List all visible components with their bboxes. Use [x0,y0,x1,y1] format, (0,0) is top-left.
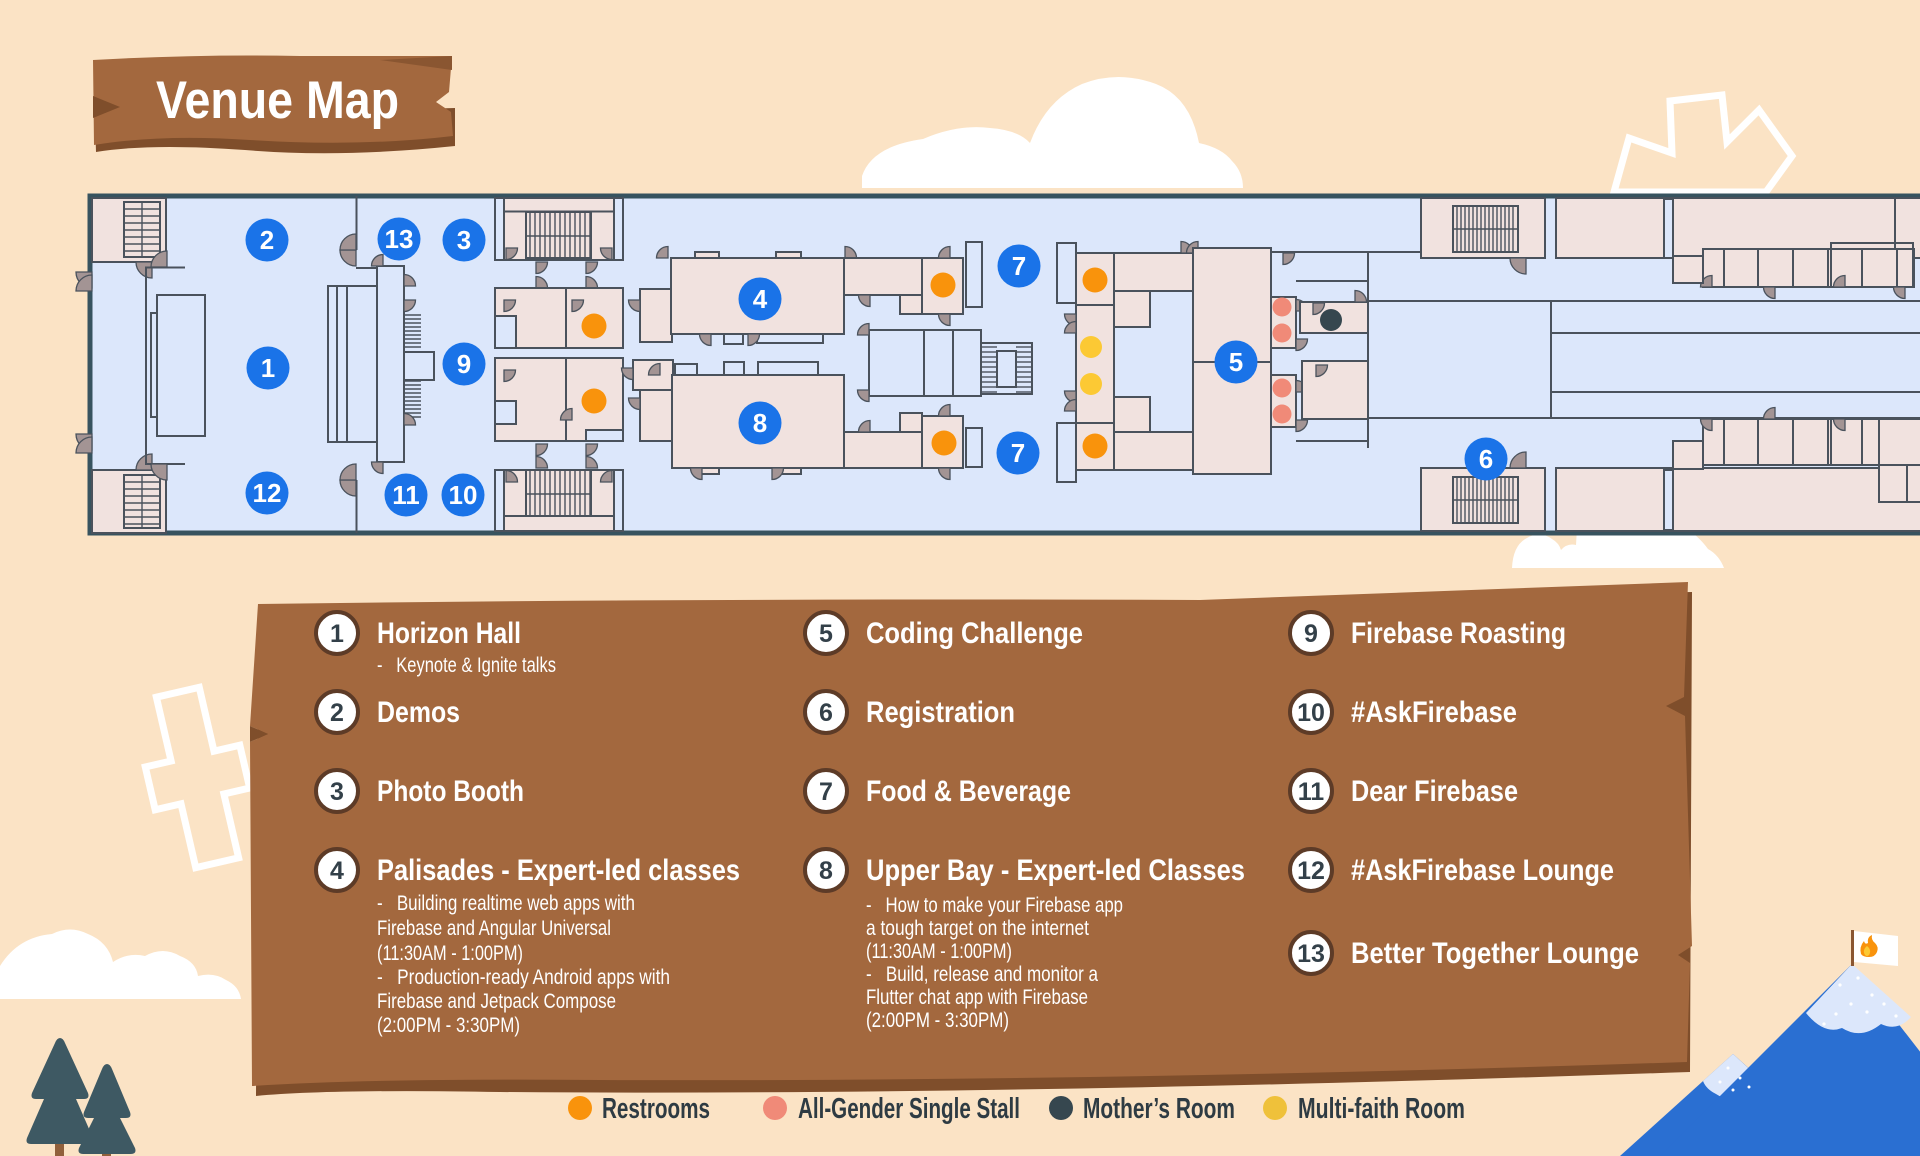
svg-text:(11:30AM - 1:00PM): (11:30AM - 1:00PM) [377,941,523,965]
svg-text:(2:00PM - 3:30PM): (2:00PM - 3:30PM) [866,1008,1009,1032]
svg-text:(11:30AM - 1:00PM): (11:30AM - 1:00PM) [866,939,1012,963]
svg-text:All-Gender Single Stall: All-Gender Single Stall [798,1093,1020,1125]
svg-text:9: 9 [1304,620,1318,648]
svg-text:- How to make your Firebase: - How to make your Firebase app [866,893,1123,917]
svg-text:8: 8 [753,408,767,438]
svg-text:7: 7 [819,778,833,806]
svg-text:11: 11 [1298,778,1325,806]
svg-text:Mother’s Room: Mother’s Room [1083,1093,1235,1125]
svg-text:12: 12 [1297,857,1325,885]
svg-text:- Production-ready Android a: - Production-ready Android apps with [377,965,670,989]
svg-text:3: 3 [457,225,471,255]
svg-text:Flutter chat app with Firebase: Flutter chat app with Firebase [866,985,1088,1009]
svg-text:3: 3 [330,778,344,806]
svg-text:Horizon Hall: Horizon Hall [377,617,521,650]
svg-text:Registration: Registration [866,696,1015,729]
svg-text:Coding Challenge: Coding Challenge [866,617,1083,650]
svg-text:Venue Map: Venue Map [156,71,399,130]
svg-text:- Keynote & Ignite talks: - Keynote & Ignite talks [377,653,556,677]
svg-text:8: 8 [819,857,833,885]
svg-text:4: 4 [330,857,344,885]
svg-text:5: 5 [1229,347,1243,377]
svg-text:10: 10 [1297,699,1325,727]
svg-text:- Build, release and monitor: - Build, release and monitor a [866,962,1098,986]
svg-text:7: 7 [1012,251,1026,281]
svg-text:6: 6 [819,699,833,727]
svg-text:Palisades - Expert-led classes: Palisades - Expert-led classes [377,854,740,887]
svg-text:6: 6 [1479,444,1493,474]
svg-text:4: 4 [753,284,768,314]
svg-text:12: 12 [253,478,282,508]
svg-text:Firebase and Angular Universal: Firebase and Angular Universal [377,916,611,940]
svg-text:11: 11 [392,480,420,510]
svg-text:Photo Booth: Photo Booth [377,775,524,808]
svg-text:2: 2 [330,699,344,727]
svg-text:- Building realtime web apps: - Building realtime web apps with [377,891,635,915]
svg-text:Food & Beverage: Food & Beverage [866,775,1071,808]
svg-text:#AskFirebase Lounge: #AskFirebase Lounge [1351,854,1614,887]
svg-text:#AskFirebase: #AskFirebase [1351,696,1517,729]
svg-text:Better Together Lounge: Better Together Lounge [1351,937,1639,970]
svg-text:13: 13 [1297,940,1325,968]
svg-text:Multi-faith Room: Multi-faith Room [1298,1093,1465,1125]
svg-text:a tough target on the internet: a tough target on the internet [866,916,1089,940]
svg-text:13: 13 [385,224,414,254]
svg-text:9: 9 [457,349,471,379]
svg-text:Firebase and Jetpack Compose: Firebase and Jetpack Compose [377,989,616,1013]
svg-text:Firebase Roasting: Firebase Roasting [1351,617,1566,650]
svg-text:7: 7 [1011,438,1025,468]
svg-text:1: 1 [261,353,275,383]
svg-text:Demos: Demos [377,696,460,729]
svg-text:Upper Bay - Expert-led Classes: Upper Bay - Expert-led Classes [866,854,1245,887]
svg-text:1: 1 [330,620,344,648]
svg-text:5: 5 [819,620,833,648]
svg-text:2: 2 [260,225,274,255]
svg-text:10: 10 [449,480,478,510]
svg-text:Dear Firebase: Dear Firebase [1351,775,1518,808]
svg-text:Restrooms: Restrooms [602,1093,710,1125]
svg-text:(2:00PM - 3:30PM): (2:00PM - 3:30PM) [377,1013,520,1037]
